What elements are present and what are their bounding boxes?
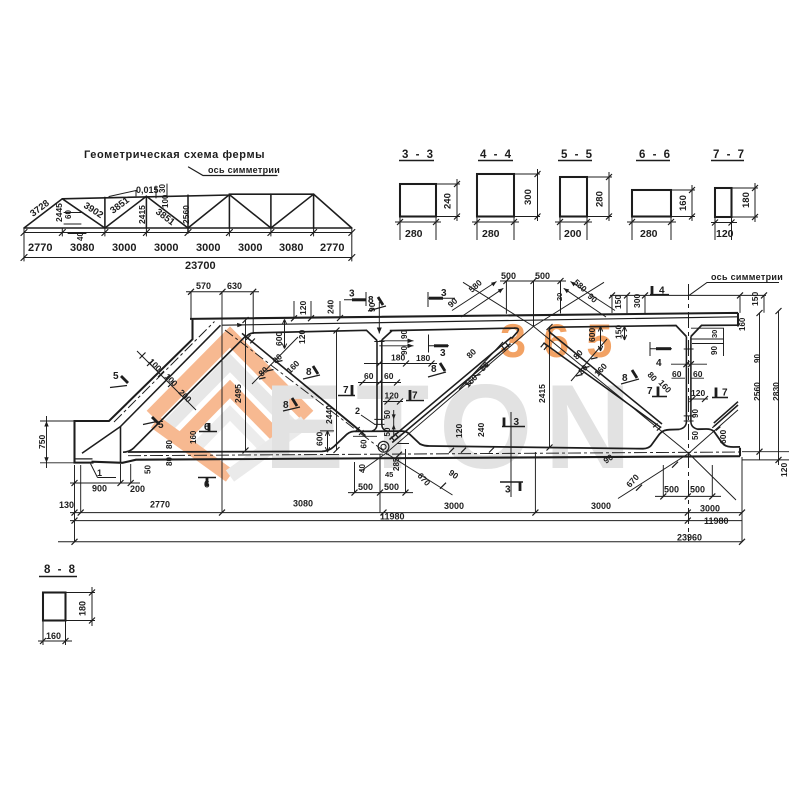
svg-text:500: 500 (664, 485, 679, 495)
svg-text:500: 500 (690, 485, 705, 495)
svg-text:2560: 2560 (181, 205, 191, 224)
svg-text:0,015: 0,015 (136, 185, 159, 195)
svg-text:8: 8 (431, 364, 437, 375)
svg-text:280: 280 (405, 228, 423, 240)
svg-text:80: 80 (165, 440, 174, 449)
svg-text:60: 60 (64, 210, 73, 219)
svg-text:3000: 3000 (591, 501, 611, 511)
svg-text:280: 280 (595, 191, 606, 207)
svg-text:240: 240 (326, 300, 336, 314)
svg-text:280: 280 (640, 228, 658, 240)
svg-text:4 - 4: 4 - 4 (480, 149, 513, 161)
svg-text:3000: 3000 (700, 504, 720, 514)
svg-text:600: 600 (718, 430, 728, 444)
svg-text:2770: 2770 (28, 242, 52, 254)
svg-text:300: 300 (523, 189, 534, 205)
svg-text:3: 3 (440, 348, 446, 359)
svg-text:3080: 3080 (279, 242, 303, 254)
svg-text:240: 240 (443, 193, 454, 209)
svg-text:130: 130 (59, 500, 74, 510)
svg-text:2440: 2440 (324, 405, 334, 424)
svg-text:180: 180 (78, 601, 88, 616)
svg-text:120: 120 (385, 391, 399, 401)
svg-text:285: 285 (392, 457, 401, 471)
svg-text:2415: 2415 (137, 205, 147, 224)
svg-text:365: 365 (500, 314, 629, 367)
svg-text:5 - 5: 5 - 5 (561, 149, 594, 161)
svg-text:300: 300 (632, 294, 642, 308)
svg-text:50: 50 (383, 427, 392, 436)
svg-text:200: 200 (130, 484, 145, 494)
svg-text:500: 500 (535, 271, 550, 281)
svg-text:23700: 23700 (185, 260, 216, 272)
svg-text:50: 50 (383, 410, 392, 419)
svg-text:3080: 3080 (70, 242, 94, 254)
svg-text:150: 150 (614, 325, 624, 339)
svg-text:200: 200 (564, 228, 582, 240)
svg-text:3000: 3000 (238, 242, 262, 254)
svg-text:120: 120 (297, 330, 307, 344)
svg-text:3000: 3000 (444, 501, 464, 511)
svg-text:5: 5 (113, 371, 119, 382)
svg-text:2495: 2495 (233, 384, 243, 403)
svg-text:40: 40 (358, 464, 367, 473)
svg-text:6 - 6: 6 - 6 (639, 149, 672, 161)
svg-text:60: 60 (693, 369, 703, 379)
svg-text:3000: 3000 (112, 242, 136, 254)
svg-text:3000: 3000 (154, 242, 178, 254)
svg-text:2560: 2560 (752, 382, 762, 401)
svg-text:8: 8 (368, 295, 374, 306)
svg-text:90: 90 (691, 409, 700, 418)
svg-text:90: 90 (400, 346, 409, 355)
svg-text:240: 240 (476, 423, 486, 437)
svg-text:3000: 3000 (196, 242, 220, 254)
svg-text:100: 100 (161, 194, 170, 208)
svg-text:120: 120 (779, 463, 789, 477)
svg-text:180: 180 (416, 353, 430, 363)
svg-text:3: 3 (349, 289, 355, 300)
svg-text:160: 160 (189, 430, 198, 444)
svg-text:280: 280 (482, 228, 500, 240)
svg-text:3 - 3: 3 - 3 (402, 149, 435, 161)
svg-text:180: 180 (741, 192, 752, 208)
svg-text:20: 20 (555, 293, 564, 301)
svg-text:120: 120 (298, 301, 308, 315)
svg-text:600: 600 (315, 432, 325, 446)
svg-text:2830: 2830 (771, 382, 781, 401)
svg-text:600: 600 (587, 328, 597, 342)
svg-text:2770: 2770 (320, 242, 344, 254)
svg-text:ось симметрии: ось симметрии (208, 165, 280, 175)
svg-text:ось симметрии: ось симметрии (711, 272, 783, 282)
svg-text:160: 160 (678, 195, 689, 211)
svg-text:Геометрическая схема фермы: Геометрическая схема фермы (84, 149, 265, 161)
svg-text:4: 4 (656, 358, 662, 369)
svg-text:7: 7 (647, 386, 653, 397)
svg-text:2445: 2445 (54, 203, 64, 222)
svg-text:3: 3 (505, 485, 511, 496)
svg-text:570: 570 (196, 281, 211, 291)
svg-text:90: 90 (400, 330, 409, 339)
svg-text:80: 80 (165, 457, 174, 466)
svg-text:900: 900 (92, 484, 107, 494)
svg-text:45: 45 (385, 470, 393, 479)
svg-text:50: 50 (144, 465, 153, 474)
svg-text:30: 30 (710, 330, 719, 338)
svg-text:2770: 2770 (150, 500, 170, 510)
svg-text:150: 150 (613, 295, 623, 309)
svg-text:150: 150 (750, 292, 760, 306)
svg-text:120: 120 (691, 388, 705, 398)
svg-text:8: 8 (306, 367, 312, 378)
svg-text:23960: 23960 (677, 533, 702, 543)
svg-text:30: 30 (158, 184, 167, 193)
svg-text:7: 7 (343, 385, 349, 396)
svg-text:500: 500 (358, 482, 373, 492)
svg-text:2: 2 (355, 406, 360, 416)
svg-text:90: 90 (753, 354, 762, 363)
svg-text:60: 60 (360, 439, 369, 448)
svg-text:750: 750 (37, 435, 47, 449)
svg-text:8 - 8: 8 - 8 (44, 564, 77, 576)
svg-text:3080: 3080 (293, 499, 313, 509)
svg-text:7 - 7: 7 - 7 (713, 149, 746, 161)
svg-text:11980: 11980 (704, 516, 729, 526)
svg-text:120: 120 (716, 228, 734, 240)
svg-text:90: 90 (710, 346, 719, 355)
svg-text:60: 60 (672, 369, 682, 379)
svg-text:11980: 11980 (380, 512, 405, 522)
svg-text:500: 500 (384, 482, 399, 492)
svg-text:630: 630 (227, 281, 242, 291)
svg-text:60: 60 (384, 371, 394, 381)
svg-text:50: 50 (691, 431, 700, 440)
svg-text:120: 120 (454, 424, 464, 438)
svg-text:160: 160 (46, 631, 61, 641)
svg-text:5: 5 (158, 420, 164, 431)
svg-text:2415: 2415 (537, 384, 547, 403)
svg-text:160: 160 (738, 317, 747, 331)
svg-text:1: 1 (97, 468, 102, 478)
